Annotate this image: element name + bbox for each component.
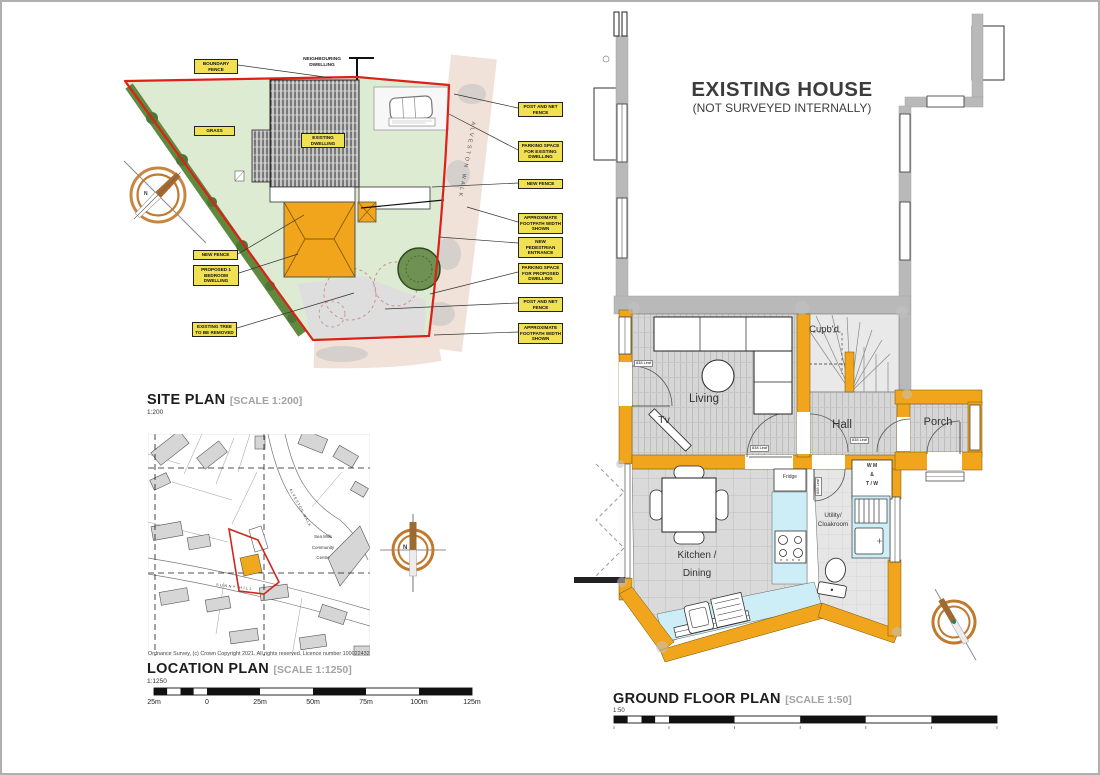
location-map-group: [148, 430, 370, 656]
gfp-scale-bar: [614, 716, 997, 729]
architectural-drawing-sheet: BOUNDARY FENCE NEIGHBOURING DWELLING GRA…: [0, 0, 1100, 775]
site-plan-group: [124, 57, 518, 362]
floorplan-compass-icon: [917, 579, 994, 671]
drawing-graphics: [2, 2, 1100, 775]
location-compass-icon: [380, 514, 446, 592]
location-scale-bar: [154, 688, 472, 695]
floor-plan-group: [574, 12, 1004, 671]
